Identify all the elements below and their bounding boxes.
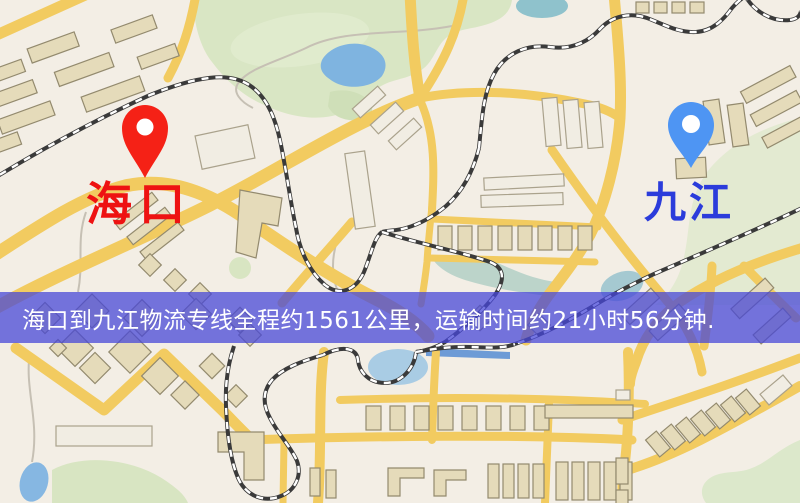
map-canvas xyxy=(0,0,800,503)
route-info-text: 海口到九江物流专线全程约1561公里，运输时间约21小时56分钟. xyxy=(0,301,715,335)
route-info-banner: 海口到九江物流专线全程约1561公里，运输时间约21小时56分钟. xyxy=(0,292,800,343)
pin-hole xyxy=(682,115,700,133)
pin-hole xyxy=(137,119,154,136)
map-image: 海口 九江 海口到九江物流专线全程约1561公里，运输时间约21小时56分钟. xyxy=(0,0,800,503)
